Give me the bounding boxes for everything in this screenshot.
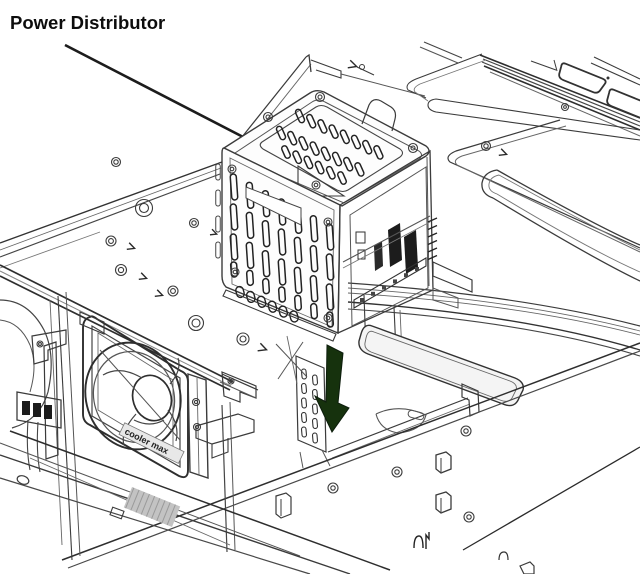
svg-text:Power Distributor: Power Distributor — [10, 12, 165, 33]
